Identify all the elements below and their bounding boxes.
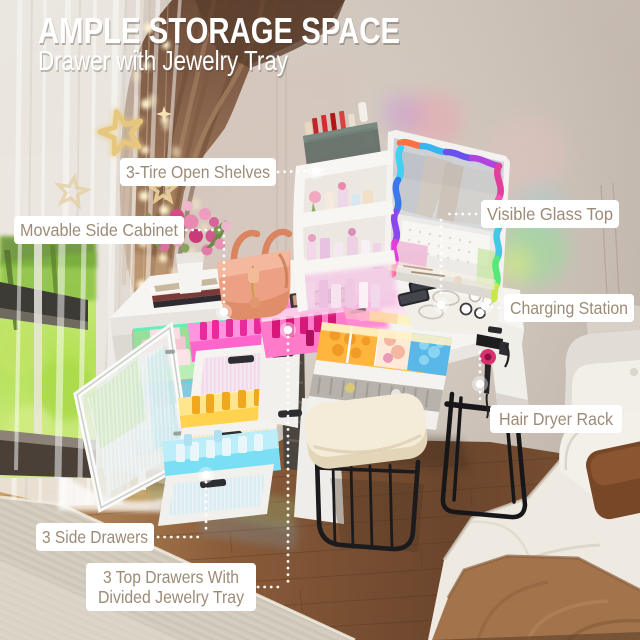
svg-text:3-Tire Open Shelves: 3-Tire Open Shelves	[126, 162, 270, 182]
svg-text:Visible Glass Top: Visible Glass Top	[487, 204, 613, 224]
svg-text:Charging Station: Charging Station	[510, 298, 628, 318]
svg-text:Drawer with Jewelry Tray: Drawer with Jewelry Tray	[38, 45, 288, 76]
svg-text:3 Side Drawers: 3 Side Drawers	[42, 527, 148, 547]
svg-text:Hair Dryer Rack: Hair Dryer Rack	[499, 409, 613, 429]
svg-text:3 Top Drawers With: 3 Top Drawers With	[103, 567, 239, 587]
svg-text:Movable Side Cabinet: Movable Side Cabinet	[20, 220, 178, 240]
svg-text:Divided Jewelry Tray: Divided Jewelry Tray	[98, 587, 244, 607]
